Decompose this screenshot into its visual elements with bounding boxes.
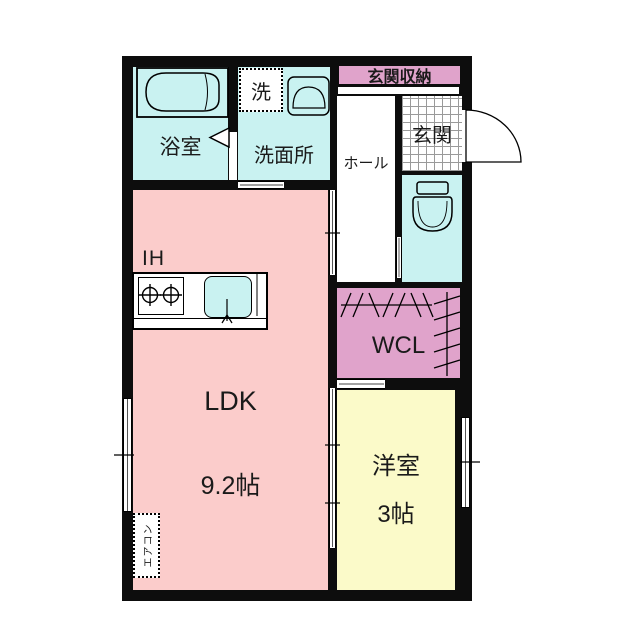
western-room-area: 3帖 (337, 494, 455, 529)
ldk-window (123, 398, 132, 512)
room-western: 洋室 3帖 (337, 390, 455, 590)
entrance-storage: 玄関収納 (337, 64, 462, 86)
stove-icon (138, 277, 184, 315)
wcl-sliding-door (337, 379, 385, 389)
ldk-hall-sliding-door (329, 190, 336, 275)
toilet-door-opening (396, 237, 402, 278)
front-door-opening (462, 110, 472, 162)
room-entrance: 玄関 (402, 96, 462, 171)
washing-machine-icon: 洗 (239, 68, 283, 112)
kitchen-sink-icon (204, 276, 252, 318)
washing-machine-label: 洗 (251, 76, 271, 105)
air-conditioner-label: エアコン (139, 524, 154, 568)
bathroom-label: 浴室 (133, 131, 228, 161)
wcl-label: WCL (337, 332, 460, 360)
western-room-label: 洋室 (337, 446, 455, 481)
kitchen-counter (132, 272, 268, 330)
ldk-label: LDK (133, 386, 328, 417)
air-conditioner-box: エアコン (133, 513, 160, 578)
ldk-western-sliding-partition (329, 388, 336, 548)
ih-cooktop-label: IH (142, 247, 165, 271)
room-walk-in-closet: WCL (337, 288, 460, 378)
washroom-sliding-door (238, 181, 284, 189)
room-bathroom: 浴室 (133, 67, 228, 180)
hall-label: ホール (337, 152, 395, 173)
counter-edge (134, 318, 266, 319)
entrance-step (337, 86, 460, 95)
entrance-label: 玄関 (402, 119, 462, 148)
entrance-storage-label: 玄関収納 (367, 63, 431, 87)
front-door-swing-icon (466, 110, 521, 162)
ldk-area: 9.2帖 (133, 466, 328, 502)
room-toilet (402, 175, 462, 282)
bathroom-door-opening (229, 132, 237, 180)
floor-plan: 浴室 洗面所 洗 ホール 玄関 玄関収納 WCL 洋室 3帖 LDK 9.2帖 (0, 0, 640, 640)
washroom-label: 洗面所 (238, 139, 330, 168)
room-washroom: 洗面所 洗 (238, 67, 330, 180)
room-hall: ホール (337, 96, 395, 282)
western-room-window (461, 417, 470, 508)
